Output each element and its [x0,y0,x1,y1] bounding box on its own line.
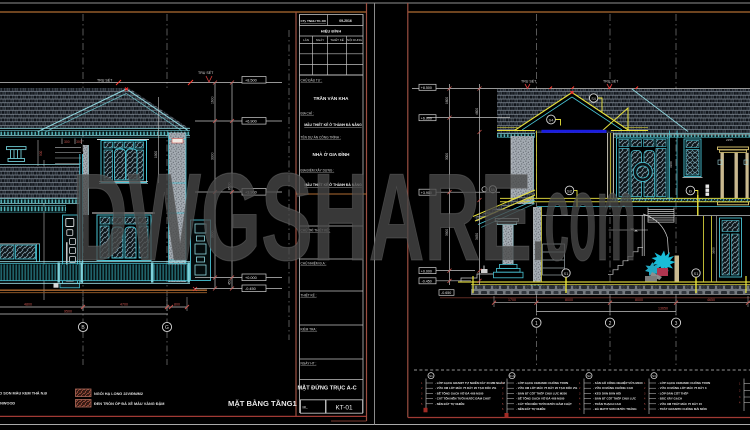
svg-text:- NỀN ĐẤT TỰ NHIÊN: - NỀN ĐẤT TỰ NHIÊN [516,406,545,411]
svg-text:+6.900: +6.900 [421,116,432,120]
svg-text:G: G [165,325,169,331]
svg-text:KIỂM TRA :: KIỂM TRA : [301,327,318,332]
svg-text:- LỚP GẠCH GRANIT TỰ NHIÊN DÀY: - LỚP GẠCH GRANIT TỰ NHIÊN DÀY 20 MM NHÁ… [435,380,505,385]
svg-text:MẶT BẰNG TẦNG1: MẶT BẰNG TẦNG1 [228,398,298,408]
svg-text:4650: 4650 [707,298,715,302]
svg-text:2: 2 [609,321,612,327]
svg-text:HIỆU ĐÍNH: HIỆU ĐÍNH [321,29,342,34]
svg-text:S3: S3 [652,374,656,378]
svg-text:CHỈ TƯỜNG ỐP GỖ CONWOOD: CHỈ TƯỜNG ỐP GỖ CONWOOD [0,401,15,406]
svg-text:- BẬC XÂY GẠCH: - BẬC XÂY GẠCH [658,396,682,401]
svg-text:S4: S4 [591,97,595,101]
svg-text:Đ: Đ [689,189,692,194]
svg-text:300: 300 [64,140,70,144]
svg-text:- VỮA XM TRÁT MÁC 75 DÀY 15: - VỮA XM TRÁT MÁC 75 DÀY 15 [658,401,702,406]
svg-text:S4: S4 [549,118,555,123]
svg-text:LẦN: LẦN [303,38,309,42]
svg-text:300: 300 [76,140,82,144]
svg-text:TRỤ SÉT: TRỤ SÉT [603,79,619,84]
svg-text:- CÁT TÔN NỀN TƯỚI NƯỚC ĐẦM CH: - CÁT TÔN NỀN TƯỚI NƯỚC ĐẦM CHẶT [435,396,491,401]
svg-text:- VỮA XM LÓT MÁC 75 DÀY 20 TẠO: - VỮA XM LÓT MÁC 75 DÀY 20 TẠO DỐC 2% [516,385,578,390]
svg-text:3900: 3900 [712,247,716,254]
svg-text:800: 800 [174,302,180,306]
svg-text:NGÀY: NGÀY [316,38,325,42]
svg-text:- BẢN BT CỐT THÉP CHỊU LỰC: - BẢN BT CỐT THÉP CHỊU LỰC [593,396,637,401]
svg-text:1: 1 [535,321,538,327]
svg-text:-0.650: -0.650 [441,291,451,295]
svg-text:- NỀN ĐẤT TỰ NHIÊN: - NỀN ĐẤT TỰ NHIÊN [435,401,464,406]
svg-text:SƠN TƯỜNG TRÁT TẠO SON MÀU KEM: SƠN TƯỜNG TRÁT TẠO SON MÀU KEM THẢ N.Đ [0,391,47,396]
svg-text:8000: 8000 [635,298,643,302]
svg-text:S1A: S1A [510,374,515,378]
svg-text:9500: 9500 [64,309,72,313]
svg-text:DWGSHARE.com: DWGSHARE.com [72,149,636,287]
svg-text:S1: S1 [429,374,433,378]
svg-text:NGÓI HẠ LONG 22V/ĐN/M2: NGÓI HẠ LONG 22V/ĐN/M2 [94,391,143,396]
svg-text:CTy TNHH TK-XD: CTy TNHH TK-XD [301,19,327,23]
svg-text:- LỚP ĐÁN CỐT THÉP: - LỚP ĐÁN CỐT THÉP [658,390,688,395]
svg-text:TRẦN VĂN KHA: TRẦN VĂN KHA [314,95,350,101]
svg-text:ĐEN TRÒN ỐP ĐÁ XẺ MÀU VÀNG ĐẬM: ĐEN TRÒN ỐP ĐÁ XẺ MÀU VÀNG ĐẬM [94,401,164,406]
svg-text:- VỮA XM LÓT MÁC 75 DÀY 20 TẠO: - VỮA XM LÓT MÁC 75 DÀY 20 TẠO DỐC 2% [435,385,497,390]
svg-text:+6.900: +6.900 [245,120,257,124]
svg-text:1600: 1600 [211,96,215,104]
svg-text:TRỤ SÉT: TRỤ SÉT [198,70,214,75]
svg-text:1600: 1600 [445,97,449,104]
svg-text:TRỤ SÉT: TRỤ SÉT [97,78,113,83]
svg-text:- BẢ MATIT SƠN NƯỚC TRẮNG: - BẢ MATIT SƠN NƯỚC TRẮNG [593,406,637,411]
svg-text:4800: 4800 [24,302,32,306]
svg-text:2255: 2255 [726,138,733,142]
svg-text:- LỚP GẠCH CERAMIC CHỐNG TRƠN: - LỚP GẠCH CERAMIC CHỐNG TRƠN [516,380,568,385]
svg-text:- TRÁT GRANITO CHỐNG MÀI MÒN: - TRÁT GRANITO CHỐNG MÀI MÒN [658,406,707,411]
svg-text:8000: 8000 [565,298,573,302]
svg-text:4600: 4600 [475,108,479,115]
svg-text:THIẾT KẾ: THIẾT KẾ [330,37,343,42]
svg-text:3: 3 [675,321,678,327]
svg-text:- BẢN BT CỐT THÉP CHỊU LỰC M25: - BẢN BT CỐT THÉP CHỊU LỰC M250 [516,390,567,395]
svg-text:3300: 3300 [669,161,673,168]
svg-text:- KEO DÁN ĐÀN HỒI: - KEO DÁN ĐÀN HỒI [593,390,621,395]
svg-text:1700: 1700 [508,298,516,302]
svg-text:13650: 13650 [658,307,668,311]
svg-text:- BÊ TÔNG GẠCH VỠ ĐÁ 4X6 M100: - BÊ TÔNG GẠCH VỠ ĐÁ 4X6 M100 [435,390,484,395]
svg-text:NỘI DUNG: NỘI DUNG [347,37,363,42]
svg-text:- VỮA XI MĂNG LÓT MÁC 75 DÀY 3: - VỮA XI MĂNG LÓT MÁC 75 DÀY 3 [658,385,707,390]
svg-text:09-2016: 09-2016 [339,19,352,23]
svg-text:- BÊ TÔNG GẠCH VỠ ĐÁ 4X6 M100: - BÊ TÔNG GẠCH VỠ ĐÁ 4X6 M100 [516,396,565,401]
svg-text:NGÀY HT :: NGÀY HT : [301,362,317,366]
svg-text:ĐỊA CHỈ :: ĐỊA CHỈ : [301,111,314,116]
svg-text:- LỚP GẠCH CERAMIC CHỐNG TRƠN: - LỚP GẠCH CERAMIC CHỐNG TRƠN [658,380,710,385]
svg-text:- TRẦN THẠCH CAO: - TRẦN THẠCH CAO [593,402,622,406]
svg-text:THIẾT KẾ :: THIẾT KẾ : [301,293,317,298]
svg-text:- SÀN GỖ CÔNG NGHIỆP VỮA M100: - SÀN GỖ CÔNG NGHIỆP VỮA M100 [593,380,643,385]
svg-text:S2: S2 [587,374,591,378]
svg-text:900: 900 [39,150,43,156]
svg-text:S1: S1 [694,272,699,276]
svg-text:TÊN DỰ ÁN CÔNG TRÌNH :: TÊN DỰ ÁN CÔNG TRÌNH : [301,135,341,140]
svg-text:KT-01: KT-01 [335,405,352,412]
svg-text:MẶT ĐỨNG TRỤC A-C: MẶT ĐỨNG TRỤC A-C [298,385,357,392]
svg-text:-0.450: -0.450 [245,287,256,291]
svg-text:TRỤ SÉT: TRỤ SÉT [521,79,537,84]
svg-text:MẪU THIẾT KẾ Ở THÀNH ĐÀ NẴNG: MẪU THIẾT KẾ Ở THÀNH ĐÀ NẴNG [304,122,362,127]
svg-text:4700: 4700 [120,302,128,306]
svg-text:- CÁT TÔN NỀN TƯỚI NƯỚC ĐẦM CH: - CÁT TÔN NỀN TƯỚI NƯỚC ĐẦM CHẶT [516,401,572,406]
svg-text:+8.500: +8.500 [421,86,432,90]
svg-text:ML.: ML. [303,406,309,410]
svg-text:- VỮA XI MĂNG CHỐNG CAO: - VỮA XI MĂNG CHỐNG CAO [593,385,634,390]
svg-text:+8.500: +8.500 [245,79,257,83]
svg-text:CHỦ ĐẦU TƯ :: CHỦ ĐẦU TƯ : [301,78,323,83]
